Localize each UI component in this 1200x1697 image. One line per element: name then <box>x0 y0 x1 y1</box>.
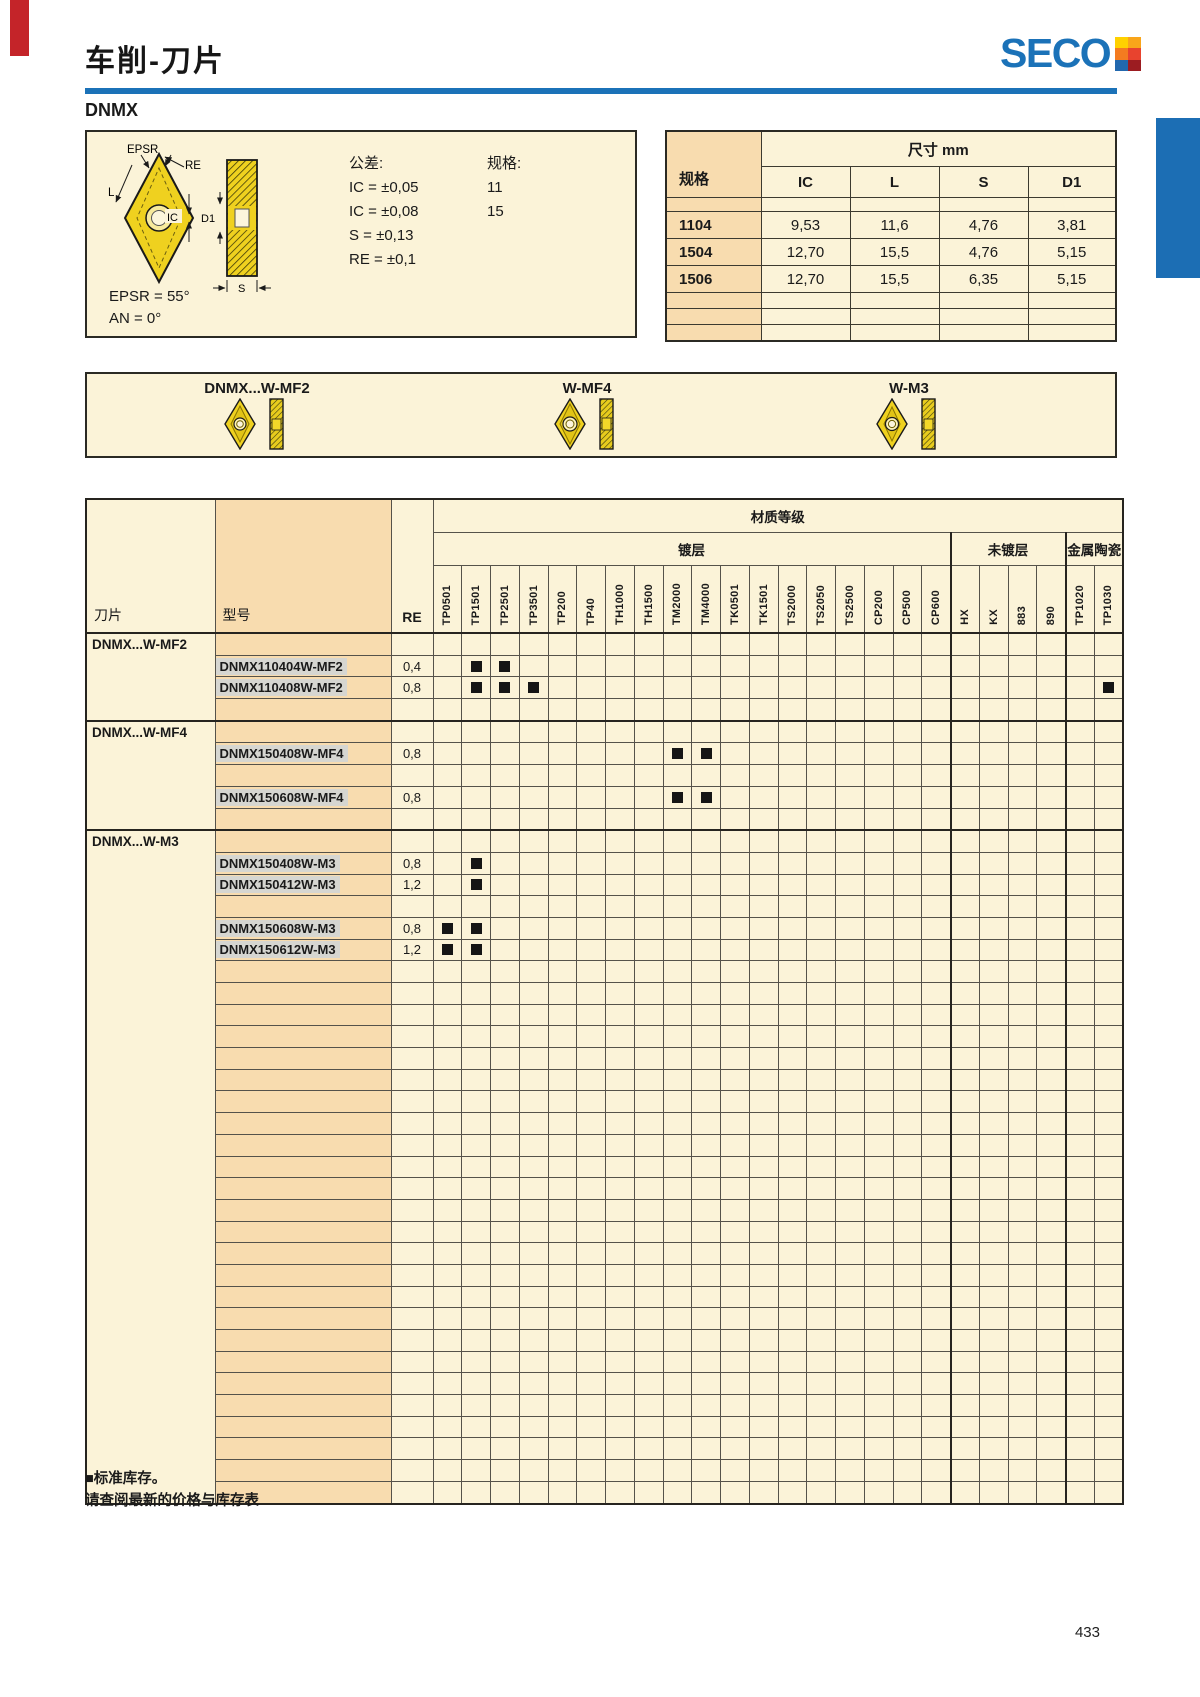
grade-cell <box>577 896 606 918</box>
grade-cell <box>864 1264 893 1286</box>
grade-cell <box>491 721 520 743</box>
grade-col-TK1501: TK1501 <box>749 566 778 634</box>
grade-cell <box>778 743 807 765</box>
stock-mark <box>1103 682 1114 693</box>
grade-cell <box>979 1351 1008 1373</box>
grade-cell <box>893 1395 922 1417</box>
grade-cell <box>433 1178 462 1200</box>
grade-cell <box>721 1156 750 1178</box>
model-cell <box>215 1438 391 1460</box>
table-row: DNMX110408W-MF20,8 <box>86 677 1123 699</box>
grade-cell <box>864 1308 893 1330</box>
grade-cell <box>749 1373 778 1395</box>
grade-cell <box>1094 1308 1123 1330</box>
grade-cell <box>922 765 951 787</box>
grade-cell <box>979 721 1008 743</box>
model-cell <box>215 1178 391 1200</box>
grade-cell <box>462 1460 491 1482</box>
grade-cell <box>1008 743 1037 765</box>
grade-cell <box>577 633 606 655</box>
grade-cell <box>548 917 577 939</box>
grade-cell <box>692 786 721 808</box>
grade-cell <box>1008 1264 1037 1286</box>
grade-cell <box>1066 1416 1095 1438</box>
grade-cell <box>864 655 893 677</box>
grade-cell <box>462 1481 491 1503</box>
re-cell <box>391 1221 433 1243</box>
grade-cell <box>778 655 807 677</box>
grade-cell <box>606 1113 635 1135</box>
grade-cell <box>462 1264 491 1286</box>
grade-cell <box>663 830 692 852</box>
grade-cell <box>491 1069 520 1091</box>
grade-cell <box>807 1221 836 1243</box>
grade-cell <box>1037 808 1066 830</box>
grade-cell <box>893 1026 922 1048</box>
grade-cell <box>979 983 1008 1005</box>
grade-cell <box>548 1351 577 1373</box>
grade-cell <box>548 743 577 765</box>
grade-cell <box>836 699 865 721</box>
grade-col-TP3501: TP3501 <box>519 566 548 634</box>
grade-cell <box>836 961 865 983</box>
stock-mark <box>471 661 482 672</box>
insert-col-cell <box>86 917 215 939</box>
insert-col-cell <box>86 1026 215 1048</box>
grade-cell <box>721 1178 750 1200</box>
grade-col-TP0501: TP0501 <box>433 566 462 634</box>
grade-cell <box>1066 721 1095 743</box>
grade-cell <box>634 1351 663 1373</box>
grade-cell <box>462 1395 491 1417</box>
grade-cell <box>1008 808 1037 830</box>
grade-cell <box>606 1460 635 1482</box>
grade-cell <box>778 983 807 1005</box>
grade-cell <box>1037 1308 1066 1330</box>
grade-cell <box>1066 1481 1095 1503</box>
grade-cell <box>1066 765 1095 787</box>
grade-cell <box>491 896 520 918</box>
grade-cell <box>433 1481 462 1503</box>
grade-cell <box>663 786 692 808</box>
grade-cell <box>749 1199 778 1221</box>
grade-cell <box>864 786 893 808</box>
grade-cell <box>1037 1330 1066 1352</box>
grade-cell <box>979 1286 1008 1308</box>
grade-cell <box>548 1286 577 1308</box>
grade-cell <box>462 1178 491 1200</box>
grade-cell <box>1094 1373 1123 1395</box>
grade-cell <box>692 852 721 874</box>
grade-cell <box>433 939 462 961</box>
grade-cell <box>663 633 692 655</box>
grade-cell <box>864 1091 893 1113</box>
grade-cell <box>548 1069 577 1091</box>
grade-cell <box>1066 896 1095 918</box>
grade-cell <box>462 765 491 787</box>
grade-cell <box>749 917 778 939</box>
grade-cell <box>1037 743 1066 765</box>
re-cell <box>391 1004 433 1026</box>
grade-cell <box>836 721 865 743</box>
grade-cell <box>836 1330 865 1352</box>
grade-cell <box>634 1438 663 1460</box>
grade-cell <box>1066 830 1095 852</box>
grade-cell <box>1066 1004 1095 1026</box>
grade-cell <box>433 1069 462 1091</box>
grade-cell <box>807 1308 836 1330</box>
insert-col-cell <box>86 1438 215 1460</box>
grade-cell <box>634 1113 663 1135</box>
grade-cell <box>922 1330 951 1352</box>
model-cell <box>215 1351 391 1373</box>
grade-cell <box>721 677 750 699</box>
size-value: 11 <box>487 176 521 200</box>
insert-thumbnail-icon <box>222 398 292 450</box>
grade-cell <box>836 939 865 961</box>
dim-span-header: 尺寸 mm <box>761 131 1116 167</box>
grade-cell <box>692 1438 721 1460</box>
model-cell: DNMX150408W-M3 <box>215 852 391 874</box>
grade-cell <box>951 699 980 721</box>
grade-cell <box>462 1048 491 1070</box>
grade-cell <box>692 1004 721 1026</box>
grade-col-TH1500: TH1500 <box>634 566 663 634</box>
grade-cell <box>1066 1048 1095 1070</box>
insert-style-label: DNMX...W-MF2 <box>147 380 367 397</box>
grade-cell <box>778 1308 807 1330</box>
grade-cell <box>634 1004 663 1026</box>
grade-cell <box>1066 1134 1095 1156</box>
model-name: DNMX150608W-M3 <box>216 920 340 937</box>
grade-cell <box>893 1264 922 1286</box>
grade-cell <box>979 896 1008 918</box>
grade-cell <box>548 1199 577 1221</box>
grade-cell <box>577 677 606 699</box>
model-cell: DNMX110404W-MF2 <box>215 655 391 677</box>
stock-mark <box>499 661 510 672</box>
grade-cell <box>577 1221 606 1243</box>
grade-cell <box>778 1004 807 1026</box>
grade-cell <box>519 699 548 721</box>
grade-cell <box>663 699 692 721</box>
grade-cell <box>606 677 635 699</box>
grade-cell <box>893 677 922 699</box>
grade-group-header: 镀层 <box>433 533 951 566</box>
grade-cell <box>721 1264 750 1286</box>
grade-cell <box>1094 983 1123 1005</box>
grade-cell <box>433 1199 462 1221</box>
grade-cell <box>1066 633 1095 655</box>
grade-cell <box>606 1004 635 1026</box>
grade-col-label: TS2500 <box>844 580 856 629</box>
grade-cell <box>491 655 520 677</box>
grade-cell <box>778 1416 807 1438</box>
grade-cell <box>433 1243 462 1265</box>
grade-cell <box>606 808 635 830</box>
grade-cell <box>634 1460 663 1482</box>
grade-cell <box>864 1134 893 1156</box>
model-cell: DNMX150608W-MF4 <box>215 786 391 808</box>
grade-cell <box>577 983 606 1005</box>
grade-cell <box>721 1460 750 1482</box>
insert-style-item: DNMX...W-MF2 <box>147 380 367 455</box>
grade-cell <box>1066 852 1095 874</box>
model-cell <box>215 1048 391 1070</box>
grade-col-label: TM2000 <box>671 578 683 629</box>
stock-mark <box>672 792 683 803</box>
grade-cell <box>491 1026 520 1048</box>
grade-cell <box>749 1243 778 1265</box>
grade-cell <box>893 1416 922 1438</box>
model-cell <box>215 1264 391 1286</box>
table-row: DNMX150408W-M30,8 <box>86 852 1123 874</box>
re-cell <box>391 1069 433 1091</box>
grade-cell <box>749 983 778 1005</box>
grade-cell <box>606 699 635 721</box>
grade-cell <box>778 852 807 874</box>
grade-class-header: 材质等级 <box>433 499 1123 533</box>
grade-cell <box>577 1308 606 1330</box>
grade-cell <box>1008 721 1037 743</box>
grade-cell <box>864 1351 893 1373</box>
grade-cell <box>491 1264 520 1286</box>
grade-cell <box>634 721 663 743</box>
insert-col-cell <box>86 1048 215 1070</box>
grade-cell <box>1008 1069 1037 1091</box>
re-cell <box>391 1026 433 1048</box>
grade-cell <box>548 677 577 699</box>
grade-cell <box>979 1069 1008 1091</box>
grade-cell <box>548 1091 577 1113</box>
grade-col-TP1501: TP1501 <box>462 566 491 634</box>
grade-col-KX: KX <box>979 566 1008 634</box>
model-cell <box>215 983 391 1005</box>
grade-cell <box>836 1113 865 1135</box>
grade-cell <box>1008 852 1037 874</box>
grade-cell <box>864 830 893 852</box>
grade-cell <box>979 1048 1008 1070</box>
grade-cell <box>778 699 807 721</box>
grade-cell <box>807 1243 836 1265</box>
header-divider-rule <box>85 88 1117 94</box>
grade-cell <box>778 830 807 852</box>
stock-mark <box>528 682 539 693</box>
re-cell <box>391 961 433 983</box>
re-cell <box>391 1048 433 1070</box>
grade-cell <box>548 786 577 808</box>
grade-cell <box>548 1221 577 1243</box>
footer-notes: ■标准库存。 请查阅最新的价格与库存表 <box>85 1468 259 1512</box>
grade-cell <box>462 655 491 677</box>
grade-cell <box>1008 1373 1037 1395</box>
grade-cell <box>1008 1048 1037 1070</box>
grade-cell <box>1066 1330 1095 1352</box>
grade-cell <box>1037 1091 1066 1113</box>
grade-cell <box>864 1460 893 1482</box>
grade-cell <box>749 1048 778 1070</box>
grade-cell <box>577 721 606 743</box>
grade-cell <box>807 1048 836 1070</box>
grade-cell <box>519 1134 548 1156</box>
grade-cell <box>548 1178 577 1200</box>
grade-cell <box>548 1243 577 1265</box>
grade-cell <box>433 1004 462 1026</box>
grade-cell <box>836 1286 865 1308</box>
grade-cell <box>1094 765 1123 787</box>
model-cell <box>215 808 391 830</box>
grade-cell <box>721 1134 750 1156</box>
grade-cell <box>893 874 922 896</box>
grade-cell <box>807 1113 836 1135</box>
grade-col-label: TK1501 <box>758 579 770 629</box>
grade-cell <box>951 1286 980 1308</box>
grade-cell <box>749 1026 778 1048</box>
table-row <box>86 1156 1123 1178</box>
grade-cell <box>462 917 491 939</box>
grade-cell <box>606 1134 635 1156</box>
grade-cell <box>491 1048 520 1070</box>
grade-cell <box>979 786 1008 808</box>
grade-cell <box>749 743 778 765</box>
grade-col-label: CP200 <box>873 585 885 629</box>
grade-cell <box>864 808 893 830</box>
grade-cell <box>893 699 922 721</box>
re-cell <box>391 1395 433 1417</box>
grade-cell <box>491 917 520 939</box>
grade-cell <box>979 1178 1008 1200</box>
re-cell: 0,8 <box>391 786 433 808</box>
re-cell <box>391 699 433 721</box>
grade-cell <box>548 1048 577 1070</box>
grade-cell <box>491 961 520 983</box>
grade-cell <box>433 808 462 830</box>
grade-cell <box>1094 1264 1123 1286</box>
stock-mark <box>701 748 712 759</box>
re-cell <box>391 1286 433 1308</box>
grade-cell <box>1094 677 1123 699</box>
grade-cell <box>663 874 692 896</box>
grade-cell <box>606 1373 635 1395</box>
grade-cell <box>634 743 663 765</box>
grade-cell <box>663 1395 692 1417</box>
grade-cell <box>1037 1438 1066 1460</box>
re-cell <box>391 1091 433 1113</box>
dimensions-table: 规格 尺寸 mm IC L S D1 1104 9,53 11,6 4,76 3… <box>665 130 1117 342</box>
grade-cell <box>951 1416 980 1438</box>
grade-cell <box>807 1091 836 1113</box>
grade-col-TP1020: TP1020 <box>1066 566 1095 634</box>
grade-cell <box>692 1286 721 1308</box>
model-name: DNMX110404W-MF2 <box>216 658 347 675</box>
grade-col-883: 883 <box>1008 566 1037 634</box>
grade-cell <box>807 655 836 677</box>
model-cell <box>215 1243 391 1265</box>
grade-cell <box>462 808 491 830</box>
grade-cell <box>634 1481 663 1503</box>
grade-cell <box>491 1481 520 1503</box>
grade-cell <box>836 1264 865 1286</box>
grade-cell <box>1094 1134 1123 1156</box>
grade-cell <box>692 1264 721 1286</box>
re-cell <box>391 1264 433 1286</box>
grade-cell <box>519 983 548 1005</box>
grade-cell <box>1066 1460 1095 1482</box>
grade-cell <box>1008 1221 1037 1243</box>
grade-cell <box>864 1395 893 1417</box>
label-s: S <box>238 283 245 294</box>
grade-cell <box>663 1156 692 1178</box>
grade-cell <box>893 1113 922 1135</box>
grade-cell <box>548 1416 577 1438</box>
model-cell <box>215 633 391 655</box>
grade-cell <box>519 939 548 961</box>
grade-cell <box>519 1199 548 1221</box>
grade-cell <box>836 1395 865 1417</box>
table-row: DNMX150412W-M31,2 <box>86 874 1123 896</box>
grade-cell <box>721 1395 750 1417</box>
grade-cell <box>778 1351 807 1373</box>
grade-cell <box>951 721 980 743</box>
grade-cell <box>663 1264 692 1286</box>
grade-cell <box>778 1199 807 1221</box>
grade-cell <box>807 1460 836 1482</box>
table-row <box>86 1351 1123 1373</box>
model-name: DNMX150612W-M3 <box>216 941 340 958</box>
grade-cell <box>807 896 836 918</box>
grade-cell <box>519 1481 548 1503</box>
grade-cell <box>692 1330 721 1352</box>
grade-cell <box>634 896 663 918</box>
grade-cell <box>749 786 778 808</box>
grade-cell <box>1037 1416 1066 1438</box>
grade-cell <box>951 1330 980 1352</box>
grade-cell <box>893 1351 922 1373</box>
grade-cell <box>462 1069 491 1091</box>
grade-cell <box>893 1134 922 1156</box>
insert-col-cell <box>86 655 215 677</box>
grade-cell <box>721 1113 750 1135</box>
grade-cell <box>1008 1308 1037 1330</box>
grade-cell <box>577 1199 606 1221</box>
grade-cell <box>1066 743 1095 765</box>
stock-legend: ■标准库存。 <box>85 1468 259 1490</box>
grade-cell <box>893 983 922 1005</box>
grade-cell <box>893 1069 922 1091</box>
grade-cell <box>577 1134 606 1156</box>
grade-cell <box>951 786 980 808</box>
grade-cell <box>462 1416 491 1438</box>
tolerance-block: 公差: IC = ±0,05 IC = ±0,08 S = ±0,13 RE =… <box>349 152 419 272</box>
grade-cell <box>951 1221 980 1243</box>
grade-cell <box>491 765 520 787</box>
grade-cell <box>692 917 721 939</box>
grade-cell <box>979 1481 1008 1503</box>
table-row <box>86 1416 1123 1438</box>
grade-cell <box>491 1330 520 1352</box>
grade-cell <box>491 852 520 874</box>
model-name: DNMX150408W-M3 <box>216 855 340 872</box>
grade-cell <box>634 1134 663 1156</box>
table-row <box>86 961 1123 983</box>
grade-cell <box>491 699 520 721</box>
grade-cell <box>778 1373 807 1395</box>
grade-cell <box>893 655 922 677</box>
grade-cell <box>548 939 577 961</box>
grade-cell <box>433 896 462 918</box>
grade-cell <box>951 1026 980 1048</box>
grade-cell <box>606 1048 635 1070</box>
